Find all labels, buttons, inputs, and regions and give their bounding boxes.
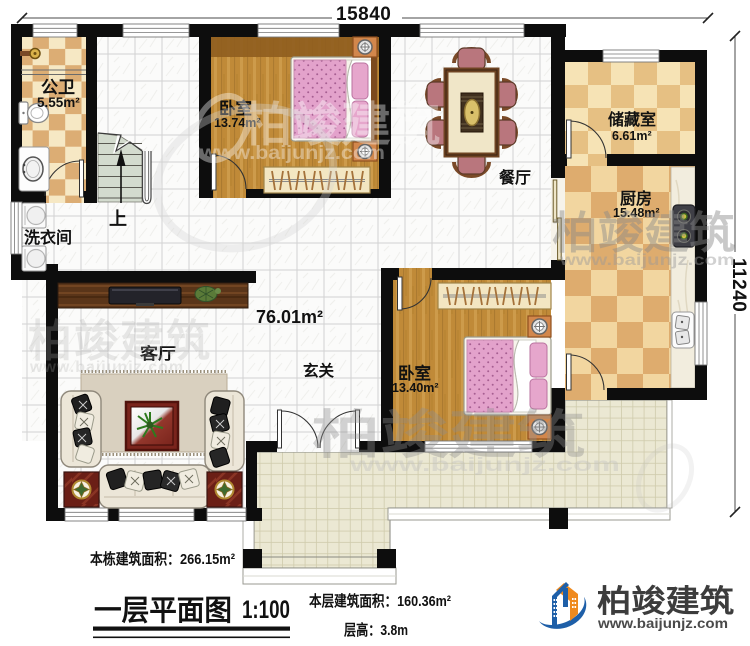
svg-text:上: 上 bbox=[109, 209, 127, 229]
svg-text:15840: 15840 bbox=[336, 4, 391, 25]
svg-text:76.01m²: 76.01m² bbox=[256, 307, 323, 327]
svg-text:卧室: 卧室 bbox=[398, 363, 431, 383]
svg-text:本栋建筑面积：266.15m²: 本栋建筑面积：266.15m² bbox=[90, 550, 235, 568]
svg-text:玄关: 玄关 bbox=[303, 361, 335, 380]
svg-text:6.61m²: 6.61m² bbox=[612, 129, 652, 143]
svg-text:1:100: 1:100 bbox=[242, 596, 290, 624]
svg-text:www.baijunjz.com: www.baijunjz.com bbox=[348, 455, 620, 476]
svg-text:餐厅: 餐厅 bbox=[498, 168, 531, 187]
svg-text:柏竣建筑: 柏竣建筑 bbox=[597, 584, 734, 619]
svg-text:层高：3.8m: 层高：3.8m bbox=[344, 621, 408, 639]
svg-text:www.baijunjz.com: www.baijunjz.com bbox=[597, 615, 728, 631]
svg-text:柏竣建筑: 柏竣建筑 bbox=[552, 209, 735, 258]
svg-text:www.baijunjz.com: www.baijunjz.com bbox=[29, 359, 184, 376]
svg-text:一层平面图: 一层平面图 bbox=[94, 595, 232, 627]
svg-text:5.55m²: 5.55m² bbox=[37, 95, 80, 110]
svg-text:洗衣间: 洗衣间 bbox=[24, 228, 72, 247]
svg-text:13.40m²: 13.40m² bbox=[392, 381, 439, 395]
svg-text:本层建筑面积：160.36m²: 本层建筑面积：160.36m² bbox=[309, 592, 451, 610]
svg-text:储藏室: 储藏室 bbox=[607, 110, 656, 129]
svg-text:www.baijunjz.com: www.baijunjz.com bbox=[559, 252, 735, 269]
